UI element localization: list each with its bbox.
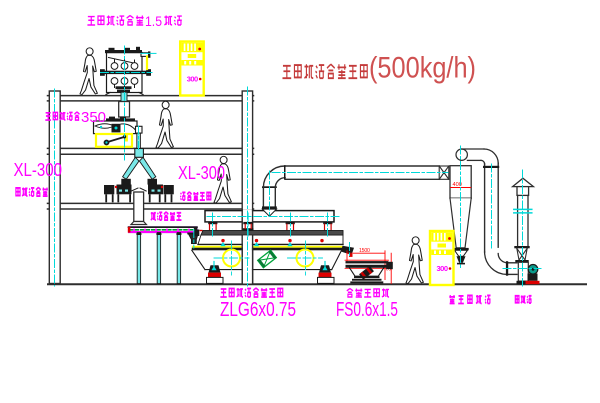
svg-text:350: 350: [81, 109, 106, 126]
svg-text:XL-300: XL-300: [14, 160, 63, 180]
svg-text:(500kg/h): (500kg/h): [369, 52, 476, 85]
svg-text:1500: 1500: [359, 248, 370, 254]
svg-text:1.5: 1.5: [145, 13, 162, 29]
svg-text:XL-300: XL-300: [178, 163, 225, 183]
svg-text:ZLG6x0.75: ZLG6x0.75: [220, 299, 296, 321]
svg-text:FS0.6x1.5: FS0.6x1.5: [336, 299, 398, 321]
